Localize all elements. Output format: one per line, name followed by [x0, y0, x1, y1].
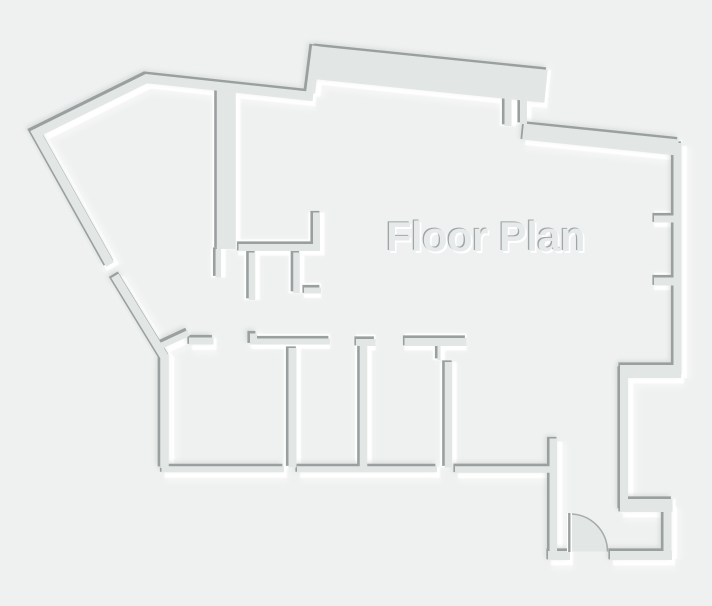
svg-text:Floor Plan: Floor Plan [386, 213, 585, 260]
